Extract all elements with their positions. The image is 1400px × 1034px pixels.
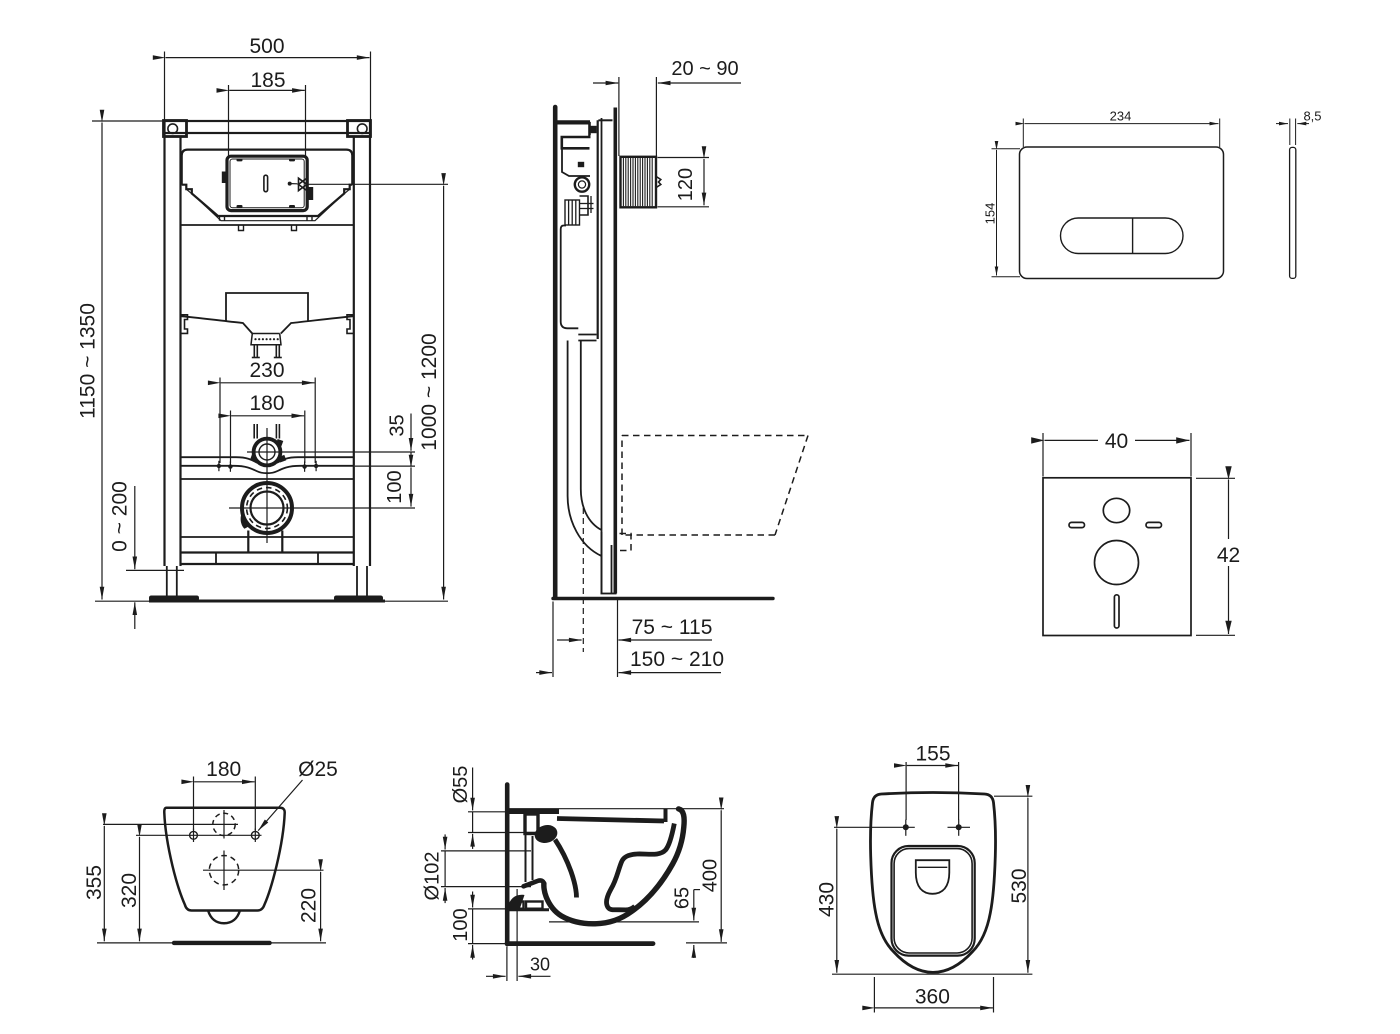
svg-text:75 ~ 115: 75 ~ 115 [632, 616, 713, 639]
svg-text:1000 ~ 1200: 1000 ~ 1200 [418, 333, 441, 450]
svg-text:40: 40 [1105, 430, 1128, 453]
svg-text:320: 320 [118, 873, 141, 908]
svg-text:100: 100 [450, 908, 472, 941]
svg-text:230: 230 [249, 359, 284, 382]
svg-text:Ø102: Ø102 [422, 852, 444, 901]
svg-text:35: 35 [387, 414, 409, 436]
svg-text:185: 185 [250, 69, 285, 92]
svg-text:500: 500 [249, 35, 284, 58]
svg-text:120: 120 [675, 168, 697, 201]
svg-text:42: 42 [1217, 544, 1240, 567]
svg-text:400: 400 [700, 859, 722, 892]
svg-text:234: 234 [1110, 109, 1132, 124]
svg-text:Ø55: Ø55 [450, 766, 472, 804]
svg-text:Ø25: Ø25 [298, 758, 338, 781]
svg-text:180: 180 [249, 392, 284, 415]
svg-text:180: 180 [206, 758, 241, 781]
svg-text:220: 220 [298, 888, 321, 923]
svg-text:154: 154 [983, 203, 998, 225]
svg-text:100: 100 [384, 470, 406, 503]
svg-text:30: 30 [530, 955, 550, 975]
svg-text:355: 355 [83, 865, 106, 900]
svg-text:150 ~ 210: 150 ~ 210 [630, 648, 724, 671]
svg-text:0 ~ 200: 0 ~ 200 [109, 481, 132, 552]
svg-text:20 ~ 90: 20 ~ 90 [671, 58, 738, 80]
svg-text:430: 430 [816, 882, 839, 917]
svg-text:1150 ~ 1350: 1150 ~ 1350 [77, 303, 100, 419]
svg-text:65: 65 [672, 887, 694, 909]
svg-text:155: 155 [915, 743, 950, 766]
svg-text:8,5: 8,5 [1303, 109, 1321, 124]
svg-text:360: 360 [915, 986, 950, 1009]
